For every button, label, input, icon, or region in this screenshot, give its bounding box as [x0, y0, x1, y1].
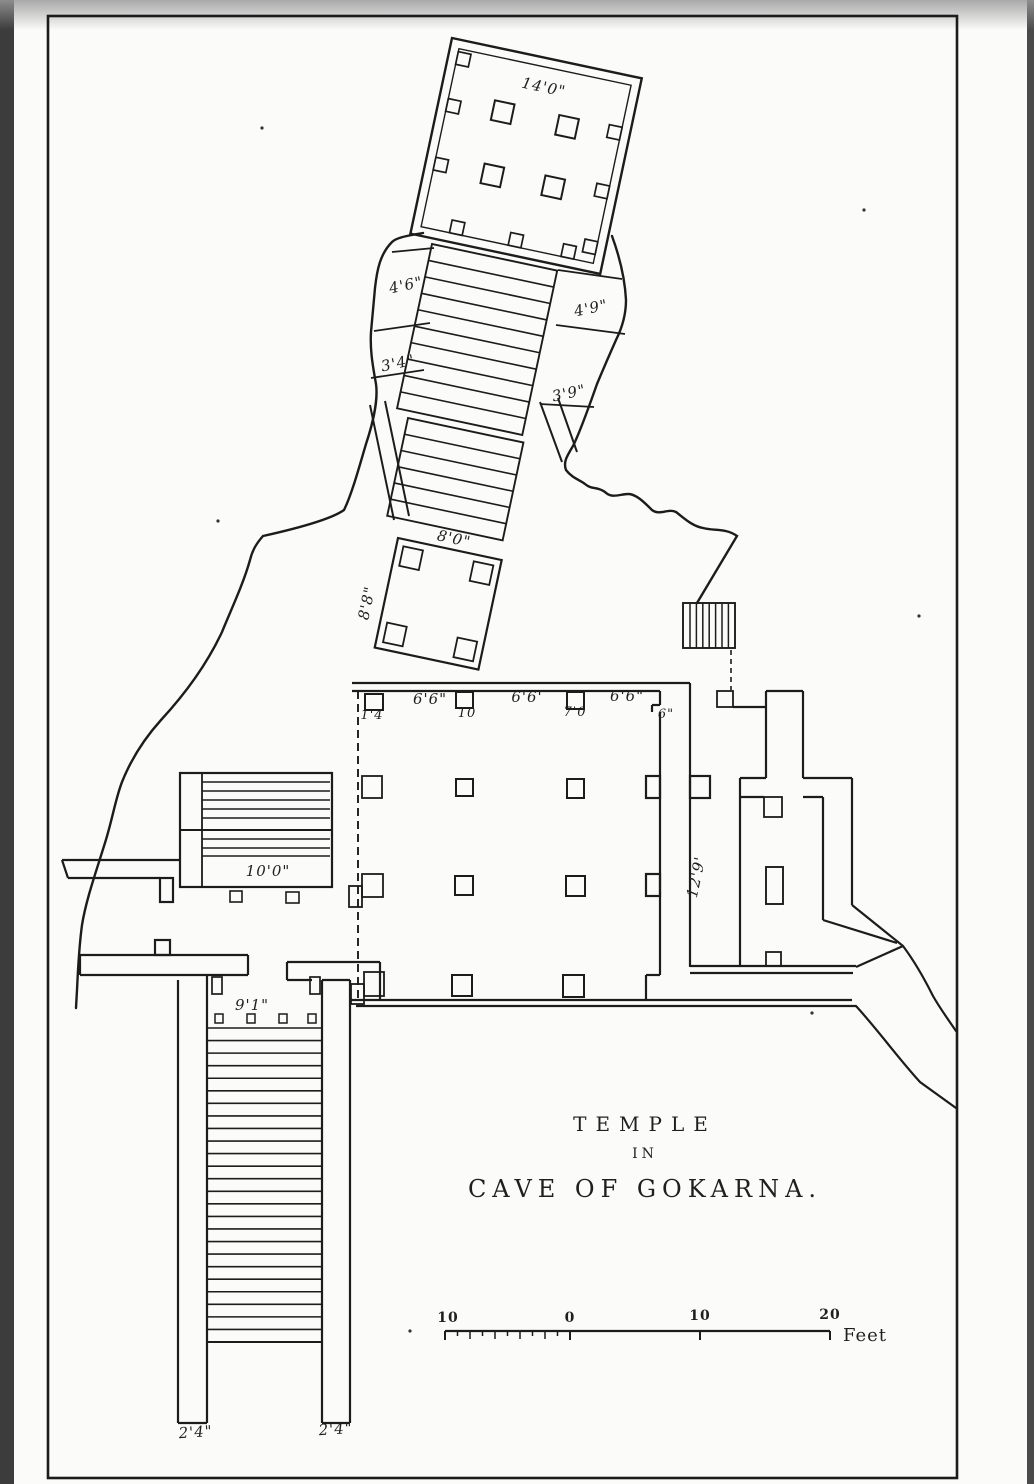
title-line1: TEMPLE: [573, 1112, 717, 1136]
shrine-depth-label: 8'8": [354, 584, 379, 621]
stair-tread: [408, 359, 533, 386]
pillar: [566, 876, 585, 896]
pillar: [555, 115, 579, 139]
scale-label-10-left: 10: [437, 1310, 458, 1326]
veranda-pilaster: [230, 891, 242, 902]
hall-bottom-wall: [350, 1000, 856, 1006]
chamber-walls: [690, 691, 903, 973]
shrine-pillar: [399, 546, 423, 570]
wall-end-left-label: 2'4": [177, 1422, 213, 1442]
pillar: [541, 175, 565, 199]
chamber-depth-label: 12'9': [683, 855, 709, 900]
veranda-pilaster: [286, 892, 299, 903]
hall-pillar3-label: 7'0: [563, 705, 586, 720]
scanned-plate-page: 14'0" 4'6" 4'9" 3'4" 3'9" 8'0" 8'8": [0, 0, 1034, 1484]
hall-span1-label: 6'6": [413, 690, 447, 708]
stair-tread: [418, 310, 543, 337]
shrine-pillar: [383, 623, 407, 647]
pillar: [452, 975, 472, 996]
stair-tread: [401, 392, 526, 419]
terrace-lower-right-label: 3'9": [550, 381, 587, 406]
hall-pillar1-label: 1'4: [360, 708, 383, 723]
scan-edge-right: [1027, 0, 1034, 1484]
scale-label-10-right: 10: [689, 1308, 710, 1324]
wall-pilaster: [594, 183, 609, 198]
post-socket: [247, 1014, 255, 1023]
hall-wall-thickness-label: 6": [658, 707, 674, 722]
title-line3: CAVE OF GOKARNA.: [468, 1175, 822, 1203]
wall-pilaster: [561, 244, 576, 259]
pillar: [491, 100, 515, 124]
entrance-staircase: 9'1" 2'4" 2'4": [177, 975, 353, 1442]
scale-unit-label: Feet: [843, 1325, 887, 1346]
hall-left-pilasters: [349, 776, 384, 1004]
wall-pilaster: [582, 239, 597, 254]
scale-bar-ticks: [445, 1331, 830, 1340]
wall-pilaster: [446, 99, 461, 114]
post-socket: [215, 1014, 223, 1023]
annex-stairs: 10'0": [180, 773, 332, 903]
stair-flight-upper: [397, 244, 557, 435]
entrance-jamb: [212, 977, 222, 994]
scale-label-0: 0: [565, 1310, 576, 1326]
mandapa-dimension-label: 14'0": [520, 74, 567, 101]
wall-end-right-label: 2'4": [317, 1419, 353, 1439]
hall-pillar2-label: 10: [458, 706, 477, 721]
terrace-upper-left-label: 4'6": [386, 273, 424, 298]
mandapa-pillars: [478, 100, 580, 200]
pillar: [455, 876, 473, 895]
post-socket: [279, 1014, 287, 1023]
plate-title: TEMPLE IN CAVE OF GOKARNA.: [468, 1112, 822, 1203]
wall-pilaster: [449, 220, 464, 235]
side-chamber: 12'9': [683, 691, 903, 973]
chamber-pilaster: [764, 797, 782, 817]
stair-flight-lower: [387, 418, 523, 540]
entrance-post-sockets: [215, 1014, 316, 1023]
shrine-pillar: [453, 638, 477, 662]
post-socket: [308, 1014, 316, 1023]
stair-tread: [411, 343, 536, 370]
plate-border: [48, 16, 957, 1478]
stair-tread: [404, 375, 529, 402]
staircase-treads: [207, 1028, 322, 1342]
pillar: [567, 779, 584, 798]
hall-pillars: [365, 692, 585, 997]
pillar: [480, 164, 504, 188]
mandapa: 14'0": [410, 38, 641, 274]
hall-span3-label: 6'6": [610, 687, 644, 705]
terrace-upper-right-label: 4'9": [571, 296, 609, 321]
stair-tread: [425, 277, 550, 304]
stair-tread: [422, 293, 547, 320]
stair-tread: [429, 260, 554, 287]
wall-pilaster: [508, 232, 523, 247]
scale-bar: 10 0 10 20 Feet: [437, 1307, 887, 1346]
annex-stair-treads: [202, 782, 330, 856]
rock-outline-bottom-right: [856, 946, 956, 1108]
chamber-pilaster: [766, 952, 781, 966]
wall-pilaster: [456, 52, 471, 67]
shrine-pillar: [470, 561, 494, 585]
main-hall: 1'4 6'6" 10 6'6' 7'0 6'6" 6": [349, 683, 856, 1006]
wall-pilaster: [607, 125, 622, 140]
rock-outline-right: [565, 236, 737, 603]
rock-steps: [683, 603, 766, 707]
stair-tread: [415, 326, 540, 353]
annex-stair-label: 10'0": [246, 862, 291, 880]
floor-plan: 14'0" 4'6" 4'9" 3'4" 3'9" 8'0" 8'8": [0, 0, 1034, 1484]
scale-label-20: 20: [819, 1307, 840, 1323]
pillar: [456, 779, 473, 796]
chamber-altar: [766, 867, 783, 904]
pillar: [563, 975, 584, 997]
scan-edge-left: [0, 0, 14, 1484]
hall-right-wall: [646, 683, 710, 1000]
entrance-width-label: 9'1": [235, 996, 269, 1014]
wall-pilaster: [433, 157, 448, 172]
landing-nib: [717, 691, 733, 707]
stair-flight-lower-treads: [391, 434, 520, 523]
staircase-side-walls: [178, 975, 350, 1423]
title-line2: IN: [632, 1146, 658, 1162]
rock-steps-hatching: [690, 603, 728, 648]
hall-span2-label: 6'6': [511, 688, 542, 706]
